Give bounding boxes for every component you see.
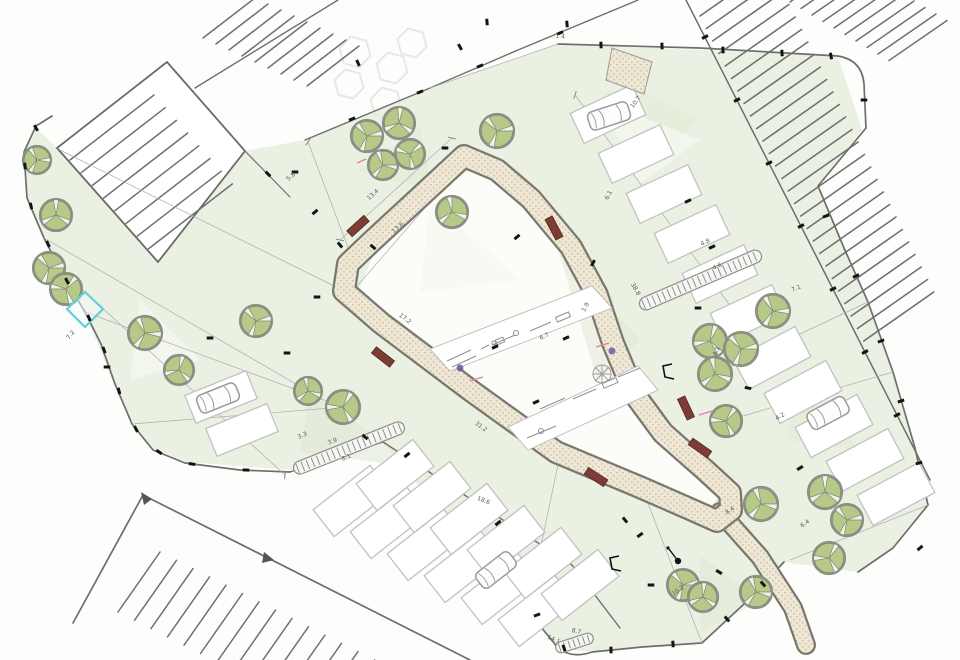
tree-icon [710,405,742,437]
dimension-label: 7.2 [65,329,77,341]
equipment-marker-dot [457,365,464,372]
road-hatch-bottomleft [201,594,243,654]
road-hatch-corner [790,0,848,2]
survey-tick [861,99,868,102]
site-plan-canvas: Landscape architecture site plan: looped… [0,0,960,660]
road-hatch-bottomleft [250,618,292,660]
road-hatch-bottomleft [300,643,342,660]
tree-icon [383,107,415,139]
survey-tick [243,468,250,471]
tree-icon [395,139,425,169]
survey-tick [476,63,483,68]
survey-tick [917,545,924,552]
tree-icon [294,377,322,405]
road-hatch-bottomleft [135,560,177,620]
road-hatch-bottomleft [316,652,358,660]
survey-tick [104,366,111,369]
survey-tick [565,21,569,28]
survey-tick [648,584,655,587]
tree-icon [693,324,727,358]
road-hatch-topleft [203,0,255,38]
survey-tick [207,337,214,340]
tree-icon [351,120,383,152]
road-hatch-topleft [242,16,294,56]
road-hatch-topleft [281,34,333,74]
watermark-hexagon-icon [377,53,408,84]
arrowhead [262,552,274,563]
road-hatch-corner [823,0,881,22]
survey-tick [721,47,724,54]
tree-leaf-blade [51,289,68,304]
road-hatch-bottomleft [184,585,226,645]
tree-icon [368,150,398,180]
tree-icon [688,582,718,612]
tree-icon [480,114,514,148]
road-hatch-bottomleft [217,602,259,660]
dimension-label: 1.4 [555,32,566,40]
road-hatch-topleft [294,40,346,80]
equipment-marker-dot [609,348,616,355]
road-hatch-topleft [216,4,268,44]
tree-icon [831,504,863,536]
survey-tick [355,59,361,66]
road-hatch-topleft [268,28,320,68]
road-hatch-bottomleft [118,552,160,612]
tree-icon [436,196,468,228]
survey-tick [284,352,291,355]
road-hatch-bottomleft [168,577,210,637]
tree-icon [808,475,842,509]
tree-icon [164,355,194,385]
survey-tick [314,296,321,299]
survey-tick [457,43,463,50]
road-hatch-topleft [255,22,307,62]
tree-icon [724,332,758,366]
road-hatch-corner [834,0,892,28]
survey-tick [599,42,602,49]
road-hatch-bottomleft [234,610,276,660]
road-hatch-bottomleft [151,569,193,629]
tree-icon [23,146,51,174]
road-hatch-corner [812,0,870,15]
survey-tick [695,307,702,310]
arrowhead [141,492,152,505]
survey-tick [189,462,196,466]
survey-tick [780,50,783,57]
tree-icon [128,316,162,350]
survey-tick [23,163,27,170]
survey-tick [442,147,449,150]
site-plan-drawing: Landscape architecture site plan: looped… [0,0,960,660]
tree-icon [698,357,732,391]
road-hatch-corner [801,0,859,9]
survey-tick [660,43,663,50]
tree-icon [756,294,790,328]
tree-icon [813,542,845,574]
tree-icon [740,576,772,608]
tree-icon [40,199,72,231]
tree-icon [744,487,778,521]
survey-tick [485,19,489,26]
watermark-hexagon-icon [335,70,364,99]
road-hatch-topright [713,0,783,41]
road-hatch-bottomleft [267,627,309,660]
watermark-hexagon-icon [398,29,427,58]
road-hatch-topleft [229,10,281,50]
tree-icon [326,390,360,424]
lamp-head [666,546,669,549]
survey-tick [609,647,612,654]
tree-icon [240,305,272,337]
survey-tick [671,641,674,648]
road-hatch-bottomleft [283,635,325,660]
